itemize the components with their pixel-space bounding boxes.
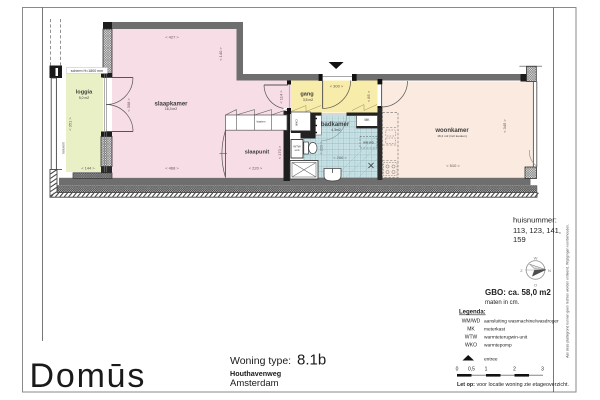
svg-text:< 220 >: < 220 > [249,166,263,171]
svg-text:< 114 >: < 114 > [279,90,284,104]
svg-text:aansluiting wasmachine/wasdrog: aansluiting wasmachine/wasdroger [484,319,559,325]
svg-text:gang: gang [300,92,314,98]
svg-text:5,0 m2: 5,0 m2 [79,96,89,100]
svg-text:16,3 m2: 16,3 m2 [165,107,177,111]
svg-text:N: N [548,268,551,273]
svg-text:huisnummer:: huisnummer: [513,216,557,225]
svg-text:< 427 >: < 427 > [165,35,179,40]
svg-text:< 266 >: < 266 > [333,155,347,160]
svg-text:3: 3 [541,367,544,373]
svg-text:loggia: loggia [76,90,93,96]
svg-text:GBO: ca. 58,0 m2: GBO: ca. 58,0 m2 [485,288,551,297]
svg-text:< 144 >: < 144 > [81,166,95,171]
svg-text:slaapunit: slaapunit [245,150,270,156]
svg-text:warmtepomp: warmtepomp [484,343,512,349]
svg-text:W: W [534,256,538,261]
svg-text:0,5: 0,5 [468,367,475,373]
svg-text:< 308 >: < 308 > [126,98,131,112]
svg-text:Amsterdam: Amsterdam [230,378,279,389]
svg-text:113, 123, 141,: 113, 123, 141, [513,226,561,235]
svg-text:WTW: WTW [465,335,478,341]
svg-text:MK: MK [467,327,475,333]
svg-text:entree: entree [484,357,498,363]
svg-text:Let op: voor locatie woning: Let op: voor locatie woning zie etageove… [457,382,569,388]
svg-text:WM/WD: WM/WD [462,319,481,325]
svg-text:3,5 m2: 3,5 m2 [303,98,313,102]
svg-text:< 170 >: < 170 > [277,145,282,159]
svg-text:WKO: WKO [465,343,477,349]
svg-text:< 351 >: < 351 > [68,117,73,131]
svg-text:159: 159 [513,235,526,244]
svg-text:unit: unit [295,148,300,152]
svg-text:4,3m2: 4,3m2 [331,128,341,132]
svg-text:Woning type:: Woning type: [230,355,291,367]
svg-text:< 345 >: < 345 > [502,119,507,133]
svg-text:< 510 >: < 510 > [446,163,460,168]
svg-text:1: 1 [485,367,488,373]
svg-text:Domūs: Domūs [30,357,147,395]
svg-text:< 85 >: < 85 > [366,90,371,102]
svg-text:scherm H=1800 mm: scherm H=1800 mm [71,69,103,73]
svg-text:hekwerk: hekwerk [62,142,66,154]
svg-text:8.1b: 8.1b [297,352,326,369]
svg-text:meterkast: meterkast [484,327,506,333]
svg-text:maten in cm.: maten in cm. [485,300,520,306]
svg-text:warmteterugwin-unit: warmteterugwin-unit [484,335,528,341]
svg-text:2: 2 [513,367,516,373]
svg-text:18,4 m2 (incl keuken): 18,4 m2 (incl keuken) [437,134,467,138]
svg-text:Legenda:: Legenda: [459,310,486,316]
svg-text:Houthavenweg: Houthavenweg [230,369,281,378]
svg-text:< 140 >: < 140 > [218,47,223,61]
svg-text:< 468 >: < 468 > [165,166,179,171]
svg-text:kasten: kasten [257,120,266,124]
svg-text:< 300 >: < 300 > [330,84,344,89]
svg-text:WM WD: WM WD [363,140,374,144]
svg-text:Aan deze plattegrond kunnen ge: Aan deze plattegrond kunnen geen rechten… [566,224,570,358]
svg-text:WKO: WKO [295,119,299,125]
svg-text:< 220 >: < 220 > [319,141,324,155]
svg-text:O: O [534,283,537,288]
svg-text:0: 0 [456,367,459,373]
svg-text:MK: MK [364,118,370,122]
